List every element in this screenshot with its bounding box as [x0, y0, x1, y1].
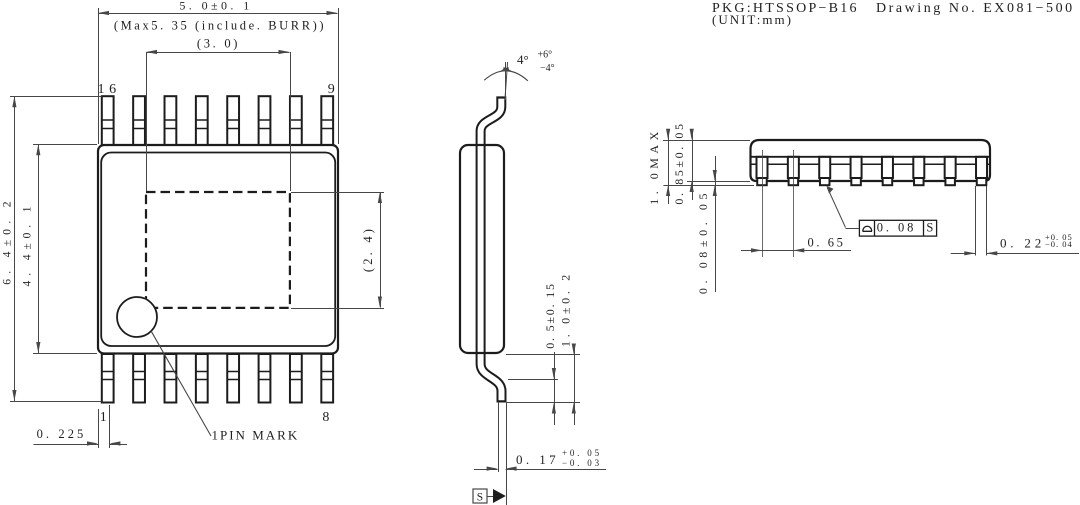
- svg-text:(Max5. 35 (include. BURR)): (Max5. 35 (include. BURR)): [114, 19, 326, 33]
- svg-text:0. 22: 0. 22: [1000, 236, 1045, 251]
- svg-text:4°: 4°: [517, 52, 529, 67]
- svg-text:5. 0±0. 1: 5. 0±0. 1: [179, 0, 252, 13]
- svg-text:(UNIT:mm): (UNIT:mm): [712, 12, 793, 27]
- svg-text:S: S: [926, 221, 933, 235]
- svg-text:16: 16: [98, 82, 121, 97]
- svg-text:0. 85±0. 05: 0. 85±0. 05: [672, 121, 686, 204]
- svg-text:−0. 04: −0. 04: [1045, 239, 1073, 249]
- svg-text:0. 5±0. 15: 0. 5±0. 15: [543, 282, 557, 349]
- svg-text:4. 4±0. 1: 4. 4±0. 1: [22, 202, 34, 287]
- svg-text:−4°: −4°: [540, 63, 555, 74]
- svg-text:8: 8: [322, 410, 329, 425]
- svg-text:1: 1: [100, 410, 107, 425]
- svg-text:0. 17: 0. 17: [516, 452, 559, 467]
- svg-text:6. 4±0. 2: 6. 4±0. 2: [2, 196, 14, 285]
- svg-text:Drawing No. EX081−500: Drawing No. EX081−500: [876, 1, 1075, 16]
- svg-text:(2. 4): (2. 4): [361, 226, 375, 272]
- svg-text:1. 0MAX: 1. 0MAX: [647, 127, 661, 205]
- svg-text:0. 08: 0. 08: [877, 221, 917, 235]
- svg-text:0. 65: 0. 65: [808, 236, 846, 250]
- svg-text:(3. 0): (3. 0): [197, 37, 240, 51]
- svg-text:+0. 05: +0. 05: [562, 448, 602, 458]
- svg-text:9: 9: [328, 82, 335, 97]
- svg-text:0. 08±0. 05: 0. 08±0. 05: [696, 189, 710, 294]
- svg-text:−0. 03: −0. 03: [562, 458, 602, 468]
- svg-text:0. 225: 0. 225: [37, 427, 87, 441]
- svg-text:S: S: [477, 492, 483, 504]
- svg-text:+6°: +6°: [538, 50, 553, 61]
- svg-text:1. 0±0. 2: 1. 0±0. 2: [559, 271, 573, 347]
- svg-text:1PIN MARK: 1PIN MARK: [212, 428, 300, 443]
